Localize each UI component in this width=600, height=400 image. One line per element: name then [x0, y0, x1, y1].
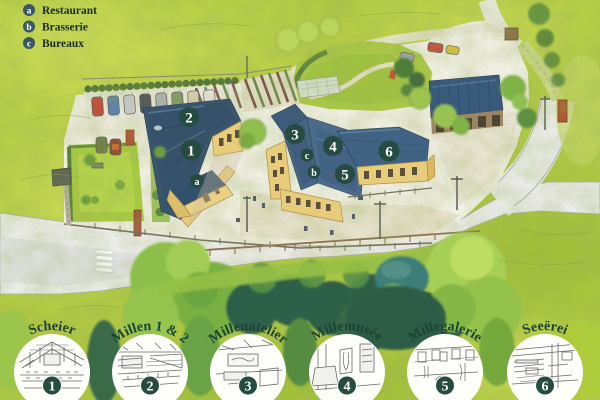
svg-text:3: 3	[291, 128, 299, 144]
svg-text:b: b	[26, 23, 31, 33]
svg-text:c: c	[305, 151, 310, 162]
svg-text:3: 3	[245, 380, 252, 395]
svg-text:Restaurant: Restaurant	[42, 5, 97, 17]
svg-text:6: 6	[542, 380, 549, 395]
svg-text:a: a	[27, 7, 32, 17]
svg-text:2: 2	[147, 380, 154, 395]
svg-text:6: 6	[385, 145, 393, 161]
svg-text:5: 5	[341, 168, 349, 184]
svg-text:2: 2	[185, 111, 193, 127]
svg-text:4: 4	[344, 380, 351, 395]
svg-text:c: c	[27, 40, 31, 50]
svg-text:Brasserie: Brasserie	[42, 22, 88, 34]
svg-text:4: 4	[329, 140, 337, 156]
svg-text:a: a	[195, 177, 200, 188]
svg-text:1: 1	[187, 144, 195, 160]
svg-text:Bureaux: Bureaux	[42, 38, 84, 50]
svg-text:1: 1	[49, 380, 56, 395]
svg-text:b: b	[311, 168, 317, 179]
svg-text:5: 5	[442, 380, 449, 395]
